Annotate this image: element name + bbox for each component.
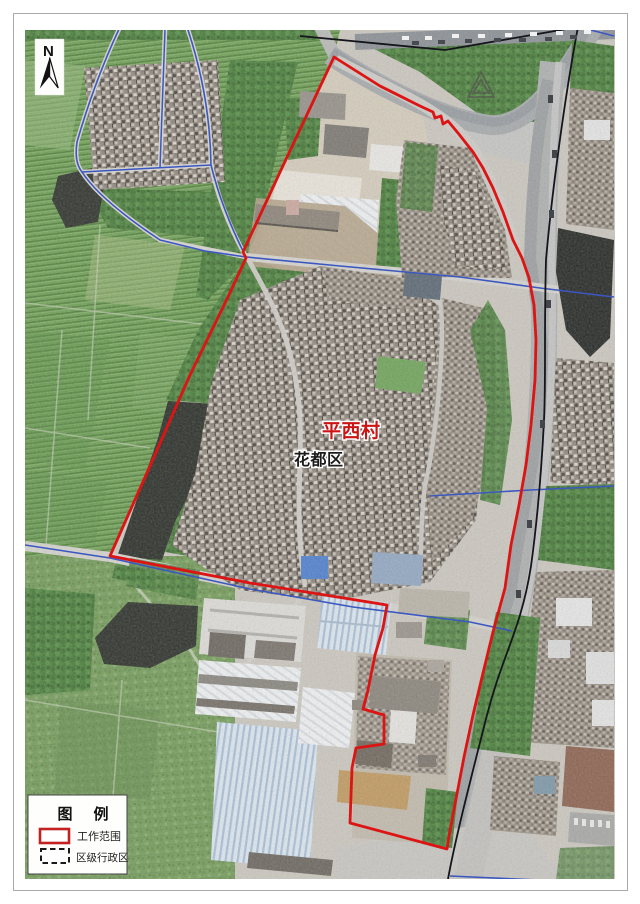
- svg-text:平西村: 平西村: [322, 419, 381, 442]
- svg-text:图: 图: [58, 806, 73, 823]
- svg-text:花都区: 花都区: [294, 450, 344, 469]
- svg-text:区级行政区: 区级行政区: [76, 851, 129, 864]
- svg-text:工作范围: 工作范围: [77, 829, 121, 843]
- svg-text:例: 例: [94, 805, 109, 823]
- svg-text:N: N: [43, 43, 54, 60]
